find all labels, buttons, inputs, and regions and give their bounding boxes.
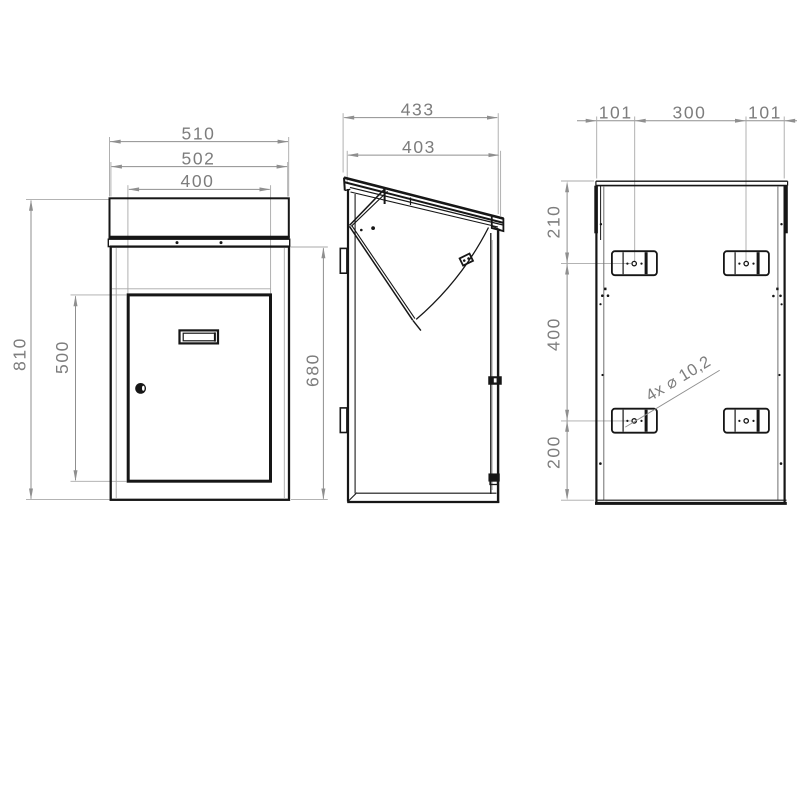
svg-text:680: 680 [302, 353, 322, 387]
svg-text:101: 101 [748, 103, 782, 123]
svg-text:101: 101 [599, 103, 633, 123]
svg-text:403: 403 [402, 137, 436, 157]
svg-text:400: 400 [544, 317, 564, 351]
svg-text:502: 502 [182, 148, 216, 168]
svg-text:510: 510 [182, 123, 216, 143]
svg-text:433: 433 [401, 99, 435, 119]
svg-text:200: 200 [544, 435, 564, 469]
svg-text:810: 810 [10, 337, 30, 371]
svg-text:210: 210 [544, 205, 564, 239]
svg-text:300: 300 [673, 103, 707, 123]
svg-text:500: 500 [52, 340, 72, 374]
svg-text:400: 400 [181, 171, 215, 191]
